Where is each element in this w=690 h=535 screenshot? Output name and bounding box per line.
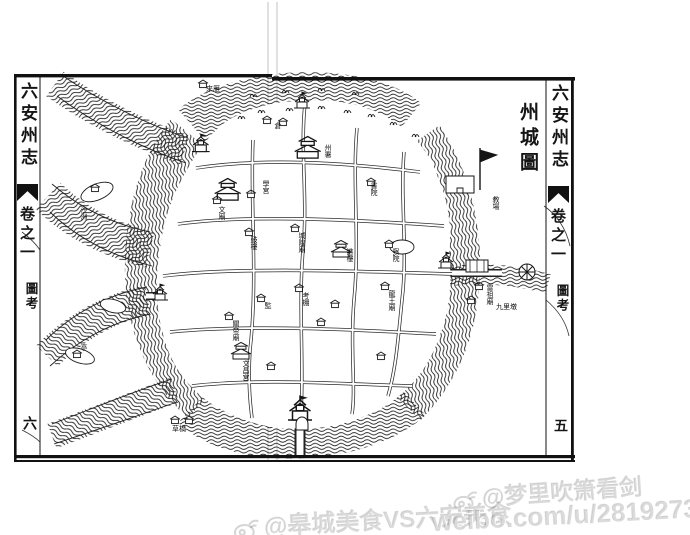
scanned-book-spread: 六安州志 卷之一 圖考 六 六安州志 卷之一 圖考 五 州城圖 倉 州署 學宮 … [0,0,690,535]
map-label: 九里墩 [496,304,517,311]
map-label: 鼓樓 [250,236,257,250]
map-label: 學宮 [262,180,269,194]
right-margin-book-title: 六安州志 [549,84,566,172]
weibo-logo-icon [232,516,262,535]
map-label: 草橋 [172,426,186,433]
left-margin-chapter: 卷之一 [19,206,34,263]
left-margin-section: 圖考 [24,282,37,311]
left-margin-book-title: 六安州志 [18,82,35,170]
map-label: 龍王廟 [388,290,395,311]
map-label: 考棚 [302,292,309,306]
map-label: 監 [264,302,271,309]
map-label: 來雁 [206,86,220,93]
woodblock-map-art [0,0,690,535]
map-title: 州城圖 [518,102,537,177]
map-label-parade-ground: 教場 [492,196,499,210]
right-margin-section: 圖考 [555,284,568,313]
map-label: 譙樓 [346,248,353,262]
map-label: 文昌宮 [242,360,249,381]
right-page-number: 五 [553,418,567,432]
map-label: 亭 [80,344,87,351]
map-label: 關帝廟 [232,320,239,341]
left-page-number: 六 [22,416,36,430]
map-label: 察院 [392,248,399,262]
map-label: 州署 [324,144,331,158]
map-label: 沙洲 [80,206,87,220]
map-label: 城隍廟 [298,232,305,253]
map-label: 文廟 [218,206,225,220]
map-label: 書院 [370,182,377,196]
map-label: 雷祖廟 [486,284,493,305]
right-margin-chapter: 卷之一 [550,208,565,265]
map-label: 倉 [274,122,281,129]
